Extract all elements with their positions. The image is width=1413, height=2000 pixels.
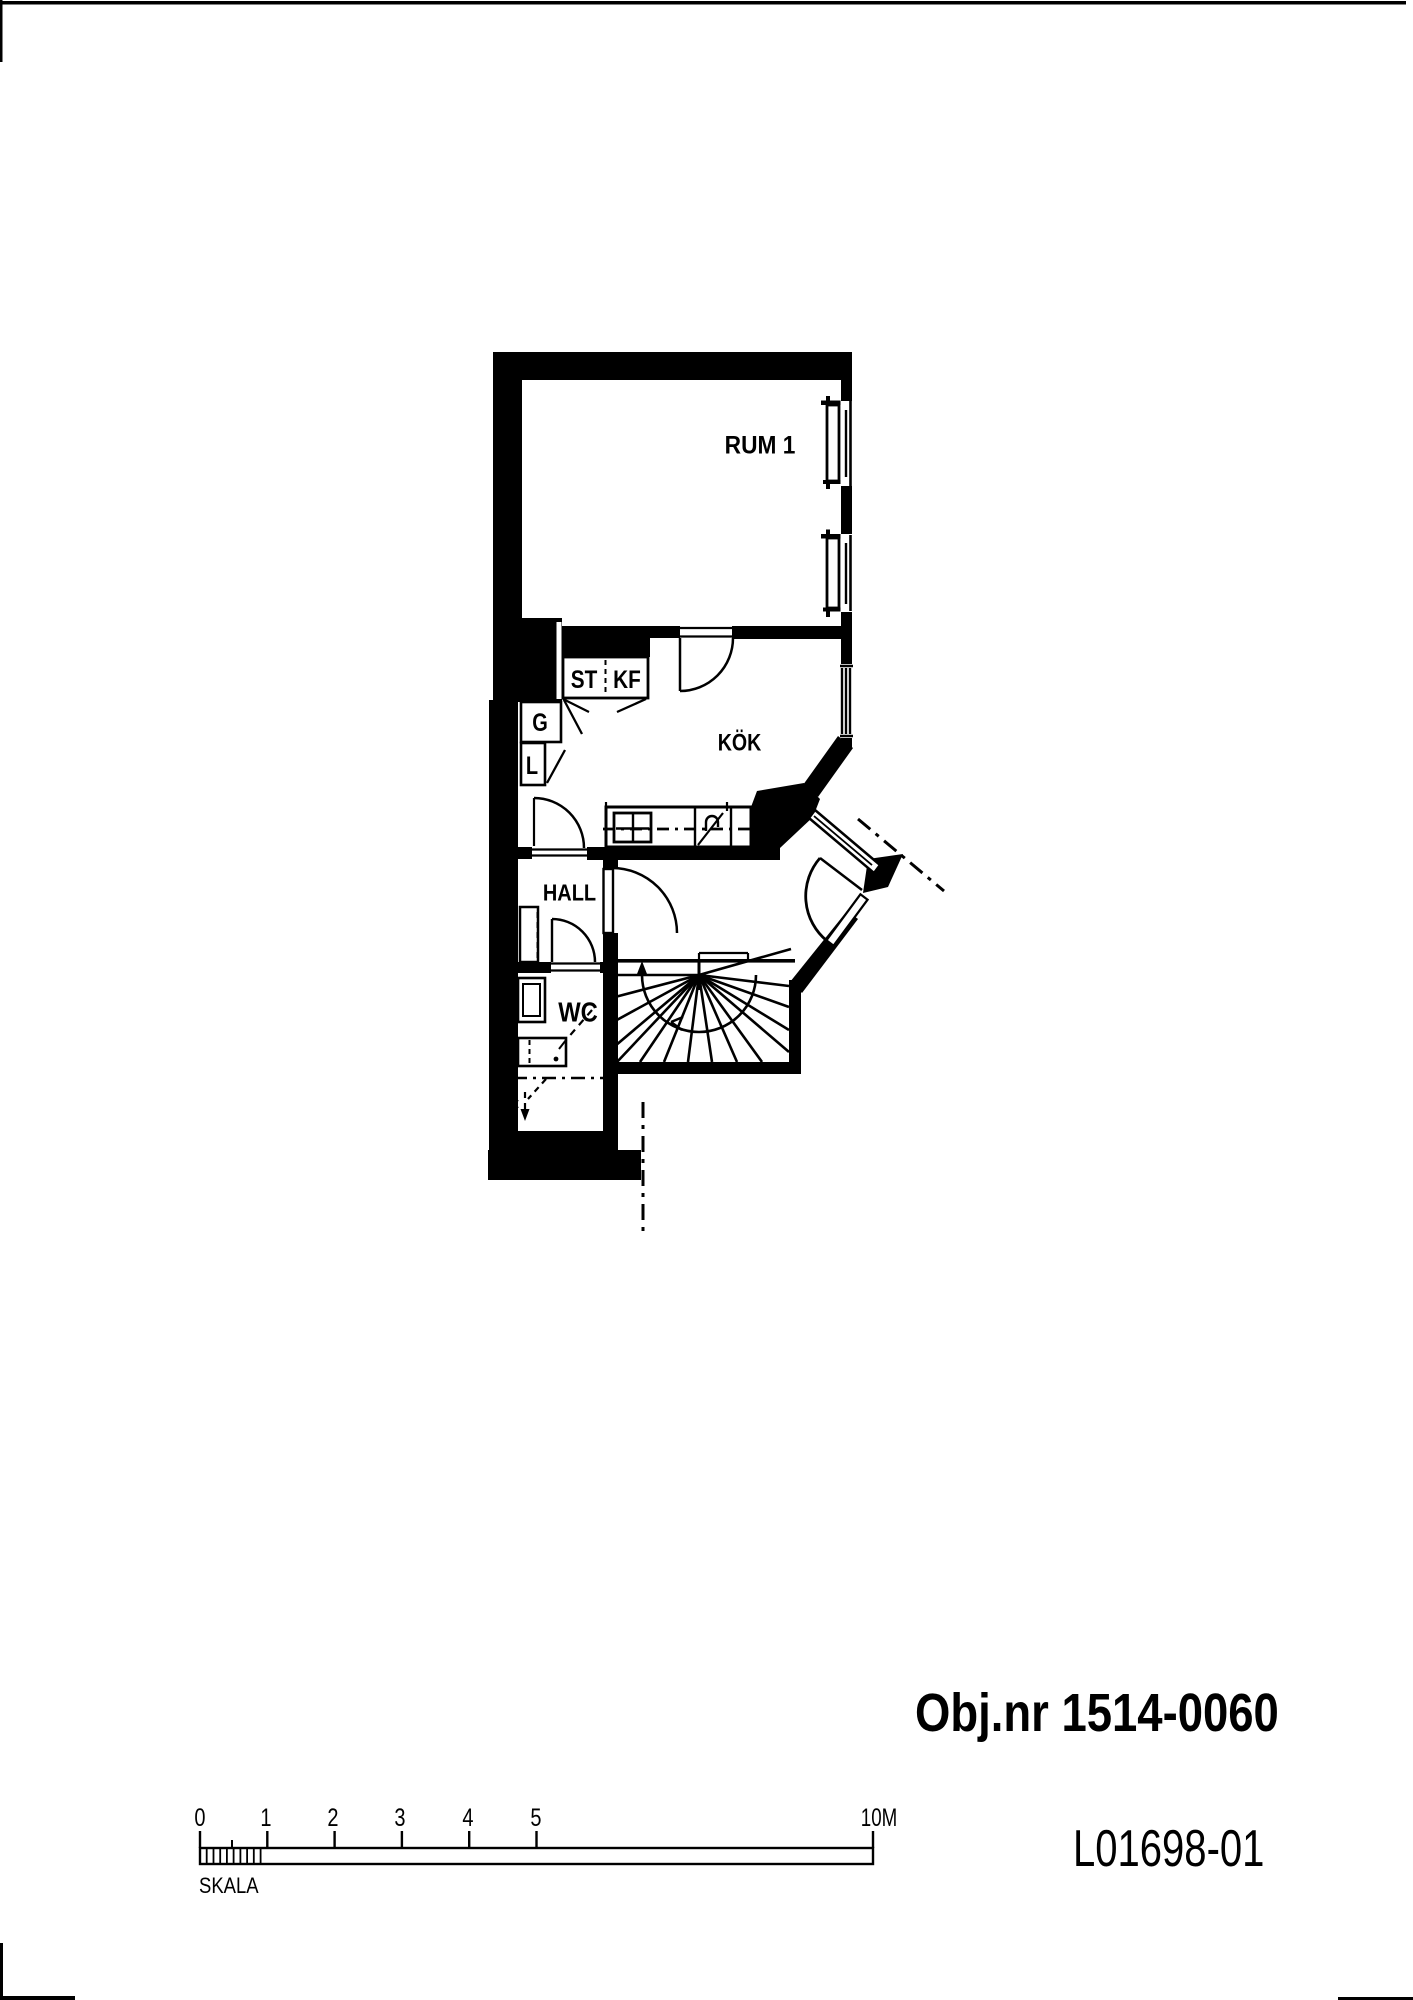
svg-text:L01698-01: L01698-01 — [1073, 1819, 1264, 1877]
svg-text:RUM 1: RUM 1 — [725, 433, 796, 460]
svg-text:Obj.nr 1514-0060: Obj.nr 1514-0060 — [915, 1683, 1279, 1743]
svg-text:0: 0 — [194, 1804, 205, 1832]
svg-text:1: 1 — [260, 1804, 271, 1832]
svg-text:KF: KF — [613, 665, 641, 693]
svg-text:ST: ST — [571, 665, 598, 693]
svg-text:5: 5 — [530, 1804, 541, 1832]
svg-text:SKALA: SKALA — [199, 1875, 259, 1899]
svg-text:WC: WC — [558, 996, 598, 1028]
svg-text:HALL: HALL — [543, 879, 596, 906]
svg-text:G: G — [532, 709, 548, 737]
svg-text:KÖK: KÖK — [718, 728, 762, 756]
svg-text:4: 4 — [462, 1804, 473, 1832]
svg-text:3: 3 — [394, 1804, 405, 1832]
svg-text:10M: 10M — [861, 1803, 897, 1831]
svg-text:L: L — [526, 752, 538, 780]
svg-text:2: 2 — [327, 1804, 338, 1832]
